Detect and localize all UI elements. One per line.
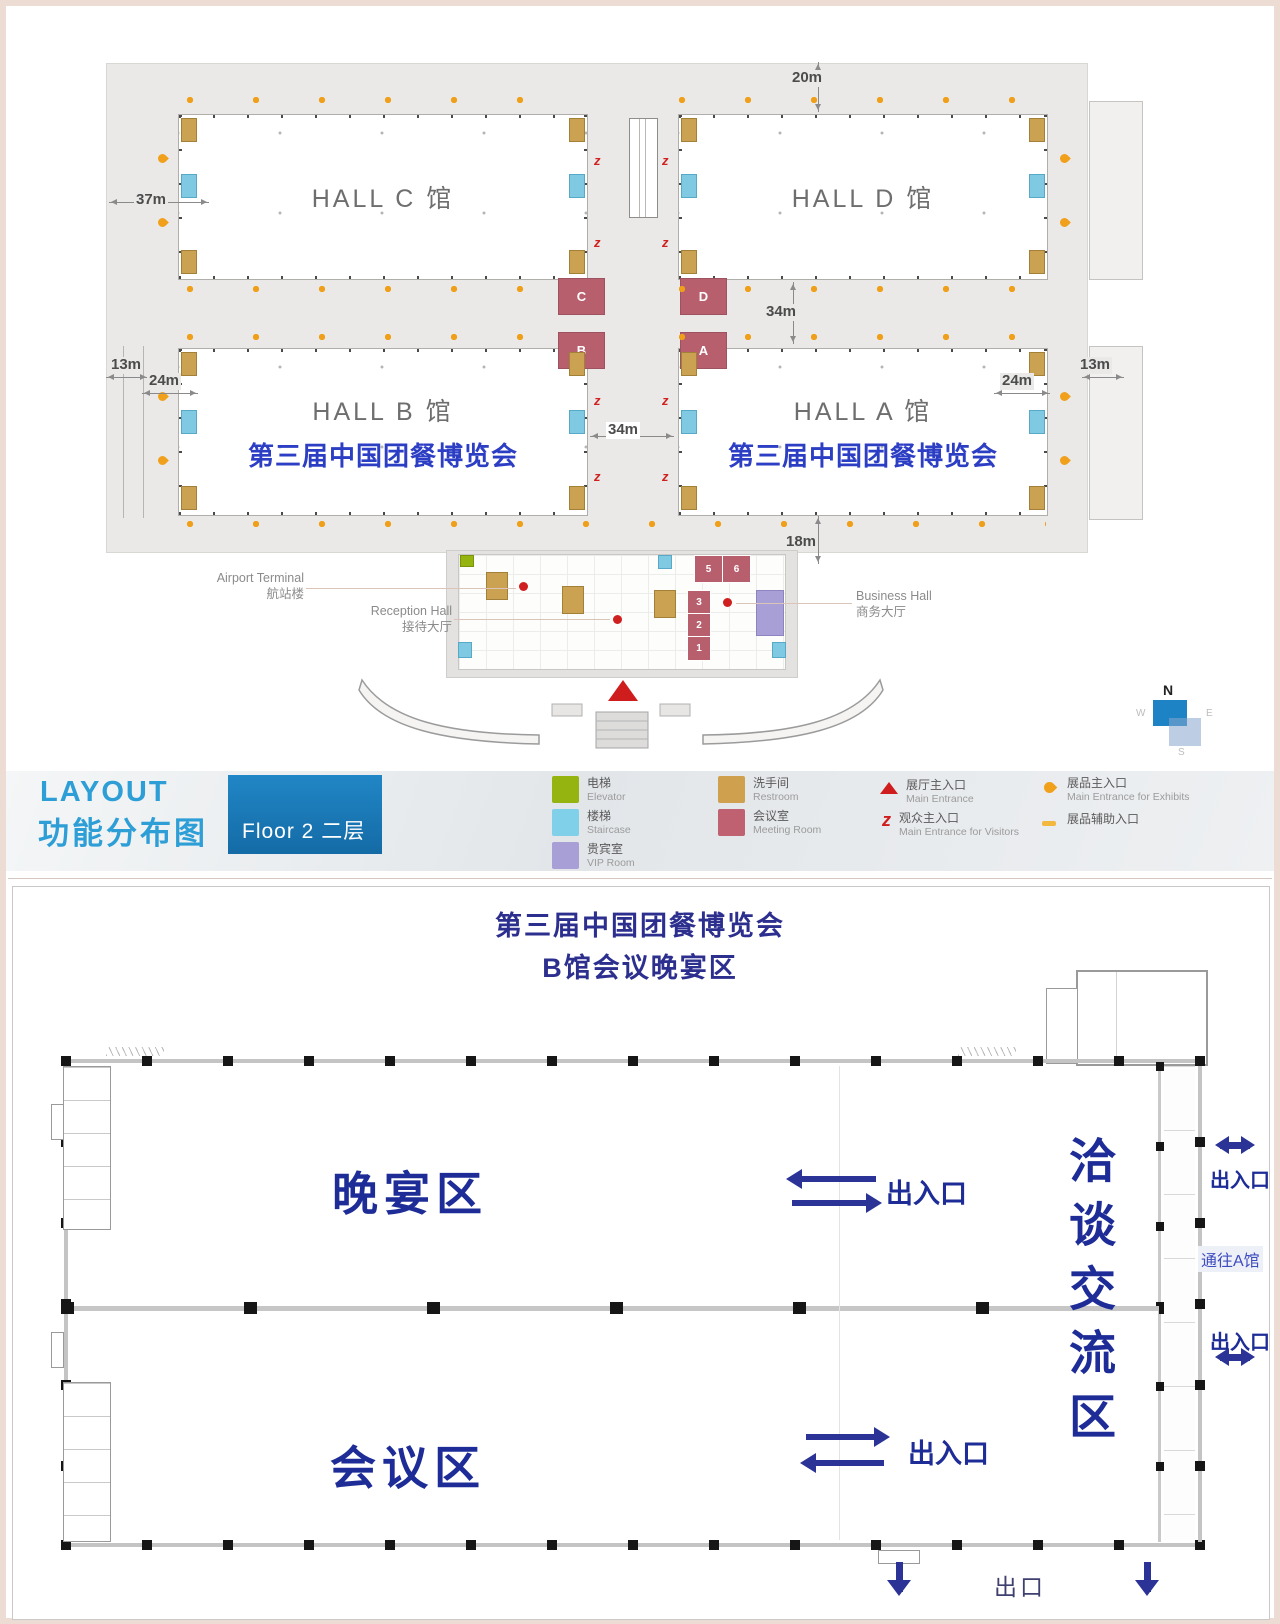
hall-b: HALL B 馆 第三届中国团餐博览会 <box>178 348 588 516</box>
staircase-swatch <box>552 809 579 836</box>
annex-room-line <box>1116 972 1117 1060</box>
visitor-entrance-icon <box>662 392 669 410</box>
entrance-arrow-left <box>806 1460 884 1466</box>
legend-meeting-en: Meeting Room <box>753 824 821 837</box>
legend-restroom-zh: 洗手间 <box>753 776 799 791</box>
staircase-icon <box>681 410 697 434</box>
hall-d: HALL D 馆 <box>678 114 1048 280</box>
legend-restroom: 洗手间Restroom <box>718 776 878 804</box>
bay-division-line <box>839 1066 840 1540</box>
staircase-icon <box>681 174 697 198</box>
panel-separator <box>8 878 1272 879</box>
legend-staircase-zh: 楼梯 <box>587 809 631 824</box>
legend-meeting-zh: 会议室 <box>753 809 821 824</box>
visitor-entrance-icon <box>662 152 669 170</box>
visitor-entrance-icon <box>662 234 669 252</box>
staircase-icon <box>181 410 197 434</box>
entrance-double-arrow <box>1220 1354 1250 1361</box>
plan-title-line1: 第三届中国团餐博览会 <box>6 904 1274 943</box>
room-6-number: 6 <box>734 564 740 575</box>
staircase-icon <box>772 642 786 658</box>
restroom-icon <box>681 118 697 142</box>
meeting-room-1: 1 <box>687 636 711 661</box>
entrance-exit-label: 出入口 <box>1210 1164 1270 1193</box>
room-2-number: 2 <box>696 620 702 631</box>
compass-south: S <box>1178 747 1185 758</box>
to-hall-a-label: 通往A馆 <box>1198 1246 1263 1272</box>
dim-13m-left: 13m <box>109 357 143 374</box>
legend-exhibit-aux-zh: 展品辅助入口 <box>1067 812 1139 827</box>
door-hatch <box>958 1047 1016 1056</box>
restroom-icon <box>181 352 197 376</box>
staircase-icon <box>1029 174 1045 198</box>
visitor-entrance-icon <box>594 392 601 410</box>
dim-13m-right: 13m <box>1078 357 1112 374</box>
dim-line-24m-left <box>142 393 198 394</box>
staircase-icon <box>1029 410 1045 434</box>
right-corridor <box>1164 1066 1195 1540</box>
page: HALL C 馆 HALL D 馆 HALL B 馆 第三届中国团餐博览会 HA… <box>0 0 1280 1624</box>
exit-label: 出口 <box>994 1568 1046 1602</box>
dim-18m: 18m <box>784 534 818 551</box>
restroom-icon <box>1029 486 1045 510</box>
hall-a: HALL A 馆 第三届中国团餐博览会 <box>678 348 1048 516</box>
restroom-icon <box>681 250 697 274</box>
annex-stair-room <box>1046 988 1078 1064</box>
legend-staircase-en: Staircase <box>587 824 631 837</box>
layout-title-en: LAYOUT <box>40 776 169 809</box>
reception-hall-en: Reception Hall <box>322 603 452 619</box>
meeting-room-6: 6 <box>722 555 751 583</box>
restroom-icon <box>486 572 508 600</box>
airport-terminal-en: Airport Terminal <box>188 570 304 586</box>
dim-20m: 20m <box>790 70 824 87</box>
main-entrance-icon <box>880 782 898 794</box>
meeting-room-a-letter: A <box>699 343 708 358</box>
legend-elevator-zh: 电梯 <box>587 776 626 791</box>
callout-leader-line <box>454 619 610 620</box>
elevator-swatch <box>552 776 579 803</box>
business-hall-callout: Business Hall 商务大厅 <box>856 588 966 621</box>
main-entrance-icon <box>608 680 638 701</box>
hall-d-label: HALL D 馆 <box>792 179 935 215</box>
divider-wall <box>61 1302 1165 1314</box>
dinner-area-label: 晚宴区 <box>332 1158 488 1224</box>
entrance-arrow-right <box>792 1200 876 1206</box>
meeting-room-c-letter: C <box>577 289 586 304</box>
meeting-room-5: 5 <box>694 555 723 583</box>
elevator-icon <box>460 555 474 567</box>
entrance-arrow-right <box>806 1434 884 1440</box>
plan-right-wall <box>1195 1056 1205 1550</box>
restroom-swatch <box>718 776 745 803</box>
floor-badge: Floor 2 二层 <box>228 775 382 854</box>
airport-terminal-callout: Airport Terminal 航站楼 <box>188 570 304 603</box>
staircase-icon <box>569 174 585 198</box>
stair-room-block <box>63 1066 111 1230</box>
location-dot <box>519 582 528 591</box>
reception-hall-zh: 接待大厅 <box>322 619 452 635</box>
dim-line-13m-left <box>106 377 148 378</box>
entrance-arrow-left <box>792 1176 876 1182</box>
legend-restroom-en: Restroom <box>753 791 799 804</box>
restroom-icon <box>569 118 585 142</box>
meeting-room-2: 2 <box>687 613 711 638</box>
room-3-number: 3 <box>696 597 702 608</box>
exhibit-aux-entrance-icon <box>1042 821 1056 826</box>
exit-arrow-down <box>1144 1562 1151 1592</box>
restroom-icon <box>562 586 584 614</box>
floor2-layout-figure: HALL C 馆 HALL D 馆 HALL B 馆 第三届中国团餐博览会 HA… <box>6 6 1274 872</box>
visitor-entrance-icon <box>594 468 601 486</box>
legend-visitor-zh: 观众主入口 <box>899 811 1019 826</box>
meeting-room-swatch <box>718 809 745 836</box>
right-annex <box>1089 101 1143 280</box>
dim-24m-left: 24m <box>147 373 181 390</box>
staircase-icon <box>458 642 472 658</box>
legend-visitor-entrance: z 观众主入口Main Entrance for Visitors <box>882 811 1052 839</box>
legend-vip-en: VIP Room <box>587 857 635 870</box>
callout-leader-line <box>736 603 852 604</box>
visitor-entrance-icon: z <box>882 811 891 829</box>
legend-exhibit-aux-entrance: 展品辅助入口 <box>1040 812 1240 827</box>
dim-line-18m <box>818 516 819 564</box>
restroom-icon <box>569 352 585 376</box>
legend-exhibit-en: Main Entrance for Exhibits <box>1067 791 1190 804</box>
visitor-entrance-icon <box>594 152 601 170</box>
floor-badge-label: Floor 2 二层 <box>242 815 365 845</box>
callout-leader-line <box>306 588 516 589</box>
restroom-icon <box>681 486 697 510</box>
legend-main-entrance-zh: 展厅主入口 <box>906 778 974 793</box>
restroom-icon <box>181 118 197 142</box>
restroom-icon <box>681 352 697 376</box>
exit-arrow-down <box>896 1562 903 1592</box>
business-hall-zh: 商务大厅 <box>856 604 966 620</box>
restroom-icon <box>1029 118 1045 142</box>
restroom-icon <box>569 486 585 510</box>
legend-vip-zh: 贵宾室 <box>587 842 635 857</box>
hall-c-label: HALL C 馆 <box>312 179 455 215</box>
restroom-icon <box>654 590 676 618</box>
vip-room-swatch <box>552 842 579 869</box>
vip-room <box>756 590 784 636</box>
meeting-room-3: 3 <box>687 590 711 615</box>
restroom-icon <box>569 250 585 274</box>
exhibit-entrance-dots <box>186 285 578 293</box>
exhibit-entrance-icon <box>1042 780 1058 796</box>
exhibit-entrance-dots <box>186 520 1046 528</box>
compass-east: E <box>1206 708 1213 719</box>
room-5-number: 5 <box>706 564 712 575</box>
hall-a-label: HALL A 馆 <box>794 392 932 428</box>
compass-west: W <box>1136 708 1145 719</box>
plan-top-wall <box>61 1056 1205 1066</box>
legend-exhibit-zh: 展品主入口 <box>1067 776 1190 791</box>
staircase-icon <box>569 410 585 434</box>
location-dot <box>723 598 732 607</box>
dim-24m-right: 24m <box>1000 373 1034 390</box>
wall-niche <box>51 1104 64 1140</box>
compass-north: N <box>1163 682 1173 698</box>
legend-staircase: 楼梯Staircase <box>552 809 702 837</box>
legend-meeting-room: 会议室Meeting Room <box>718 809 878 837</box>
door-hatch <box>106 1047 164 1056</box>
negotiation-area-label: 洽谈交流区 <box>1054 1136 1123 1486</box>
legend-main-entrance: 展厅主入口Main Entrance <box>880 778 1050 806</box>
legend-vip-room: 贵宾室VIP Room <box>552 842 702 870</box>
dim-37m: 37m <box>134 192 168 209</box>
dim-34m-vertical: 34m <box>764 304 798 321</box>
central-atrium <box>629 118 658 218</box>
staircase-icon <box>181 174 197 198</box>
entrance-exit-label: 出入口 <box>886 1172 967 1211</box>
annex-room <box>1076 970 1208 1066</box>
stair-room-block <box>63 1382 111 1542</box>
restroom-icon <box>1029 250 1045 274</box>
conference-area-label: 会议区 <box>330 1432 486 1498</box>
legend-elevator: 电梯Elevator <box>552 776 702 804</box>
plan-bottom-wall <box>61 1540 1205 1550</box>
restroom-icon <box>181 486 197 510</box>
hall-a-expo-banner: 第三届中国团餐博览会 <box>728 436 998 473</box>
compass-icon <box>1169 718 1201 746</box>
exhibit-entrance-dots <box>678 285 1046 293</box>
left-strip-line <box>143 346 144 518</box>
dim-34m-horizontal: 34m <box>606 422 640 439</box>
business-hall-en: Business Hall <box>856 588 966 604</box>
hall-b-label: HALL B 馆 <box>312 392 453 428</box>
dim-line-13m-right <box>1082 377 1124 378</box>
legend-visitor-en: Main Entrance for Visitors <box>899 826 1019 839</box>
dim-line-24m-right <box>994 393 1050 394</box>
hall-b-expo-banner: 第三届中国团餐博览会 <box>248 436 518 473</box>
visitor-entrance-icon <box>662 468 669 486</box>
legend-main-entrance-en: Main Entrance <box>906 793 974 806</box>
exhibit-entrance-dots <box>186 96 578 104</box>
location-dot <box>613 615 622 624</box>
exhibit-entrance-dots <box>678 333 1046 341</box>
visitor-entrance-icon <box>594 234 601 252</box>
exhibit-entrance-dots <box>678 96 1046 104</box>
hall-c: HALL C 馆 <box>178 114 588 280</box>
airport-terminal-zh: 航站楼 <box>188 586 304 602</box>
room-1-number: 1 <box>696 643 702 654</box>
legend-exhibit-entrance: 展品主入口Main Entrance for Exhibits <box>1040 776 1240 804</box>
legend-elevator-en: Elevator <box>587 791 626 804</box>
staircase-icon <box>658 555 672 569</box>
entrance-exit-label: 出入口 <box>908 1432 989 1471</box>
entrance-double-arrow <box>1220 1142 1250 1149</box>
restroom-icon <box>181 250 197 274</box>
meeting-room-c: C <box>558 278 605 315</box>
wall-niche <box>51 1332 64 1368</box>
reception-hall-callout: Reception Hall 接待大厅 <box>322 603 452 636</box>
layout-title-zh: 功能分布图 <box>38 808 208 853</box>
exhibit-entrance-dots <box>186 333 578 341</box>
meeting-room-d: D <box>680 278 727 315</box>
